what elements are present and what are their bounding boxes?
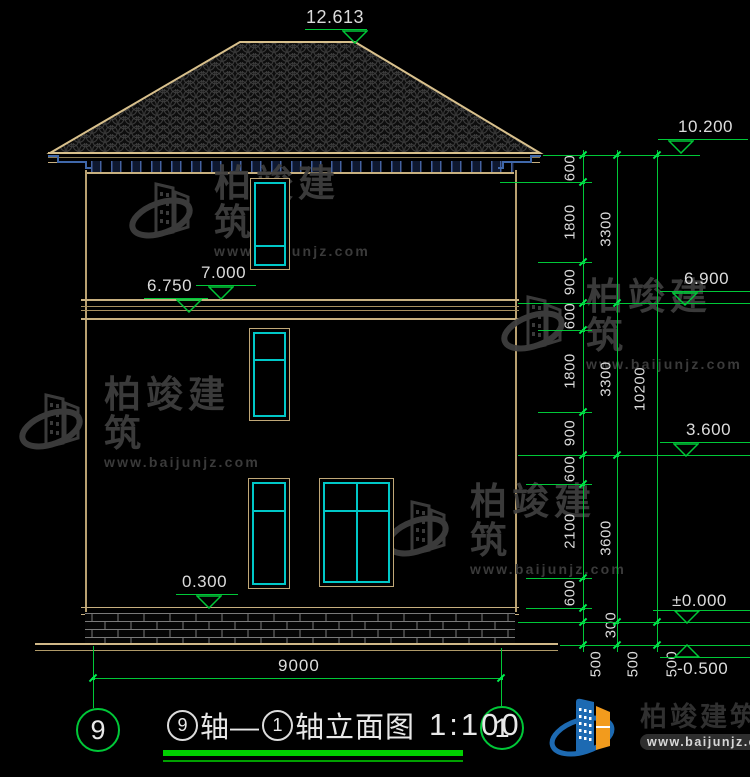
dim-label: 500 xyxy=(588,651,605,678)
dim-tick-dot xyxy=(500,677,503,680)
level-label-zero: ±0.000 xyxy=(672,591,727,611)
dim-label: 600 xyxy=(562,580,579,607)
level-label-band_bottom: 6.750 xyxy=(147,276,192,296)
dim-extension-line xyxy=(526,578,592,579)
dim-extension-line xyxy=(518,622,750,623)
dim-tick-dot xyxy=(92,677,95,680)
dim-label: 2100 xyxy=(562,513,579,548)
level-marker-triangle xyxy=(208,286,234,300)
dim-extension-line xyxy=(518,303,750,304)
dim-extension-line xyxy=(500,182,592,183)
dim-extension-line xyxy=(538,330,592,331)
dim-label: 3600 xyxy=(598,520,615,555)
level-marker-triangle xyxy=(342,30,368,44)
level-label-ground: -0.500 xyxy=(677,659,728,679)
dim-label: 900 xyxy=(562,269,579,296)
dim-extension-line xyxy=(526,608,592,609)
level-marker-triangle xyxy=(673,443,699,457)
dim-label: 10200 xyxy=(632,367,649,411)
level-marker-line xyxy=(653,610,750,611)
dim-label: 600 xyxy=(562,155,579,182)
dim-chain-line xyxy=(657,150,658,652)
dim-label: 500 xyxy=(625,651,642,678)
dimensions-layer: 6001800900600180090060021006003005003300… xyxy=(0,0,750,777)
level-label-floor2: 3.600 xyxy=(686,420,731,440)
dim-extension-line xyxy=(526,484,592,485)
level-marker-triangle xyxy=(196,595,222,609)
dim-extension-line xyxy=(518,455,750,456)
level-label-eave: 10.200 xyxy=(678,117,733,137)
level-label-band_top: 7.000 xyxy=(201,263,246,283)
dim-label: 1800 xyxy=(562,353,579,388)
level-marker-triangle xyxy=(674,644,700,658)
dim-extension-line xyxy=(538,412,592,413)
level-label-plinth: 0.300 xyxy=(182,572,227,592)
bottom-dim-line xyxy=(93,678,502,679)
dim-label: 3300 xyxy=(598,361,615,396)
dim-label: 3300 xyxy=(598,211,615,246)
level-label-ridge: 12.613 xyxy=(306,7,364,28)
elevation-drawing-canvas: 柏竣建筑www.baijunjz.com柏竣建筑www.baijunjz.com… xyxy=(0,0,750,777)
level-marker-triangle xyxy=(672,292,698,306)
dim-label: 1800 xyxy=(562,204,579,239)
level-marker-triangle xyxy=(176,299,202,313)
dim-chain-line xyxy=(617,150,618,652)
dim-extension-line xyxy=(560,645,750,646)
bottom-dim-label: 9000 xyxy=(278,656,320,676)
dim-extension-line xyxy=(538,262,592,263)
dim-extension-line xyxy=(543,155,700,156)
dim-label: 600 xyxy=(562,456,579,483)
level-label-floor3: 6.900 xyxy=(684,269,729,289)
level-marker-triangle xyxy=(674,610,700,624)
level-marker-triangle xyxy=(668,140,694,154)
dim-label: 900 xyxy=(562,420,579,447)
dim-label: 600 xyxy=(562,303,579,330)
